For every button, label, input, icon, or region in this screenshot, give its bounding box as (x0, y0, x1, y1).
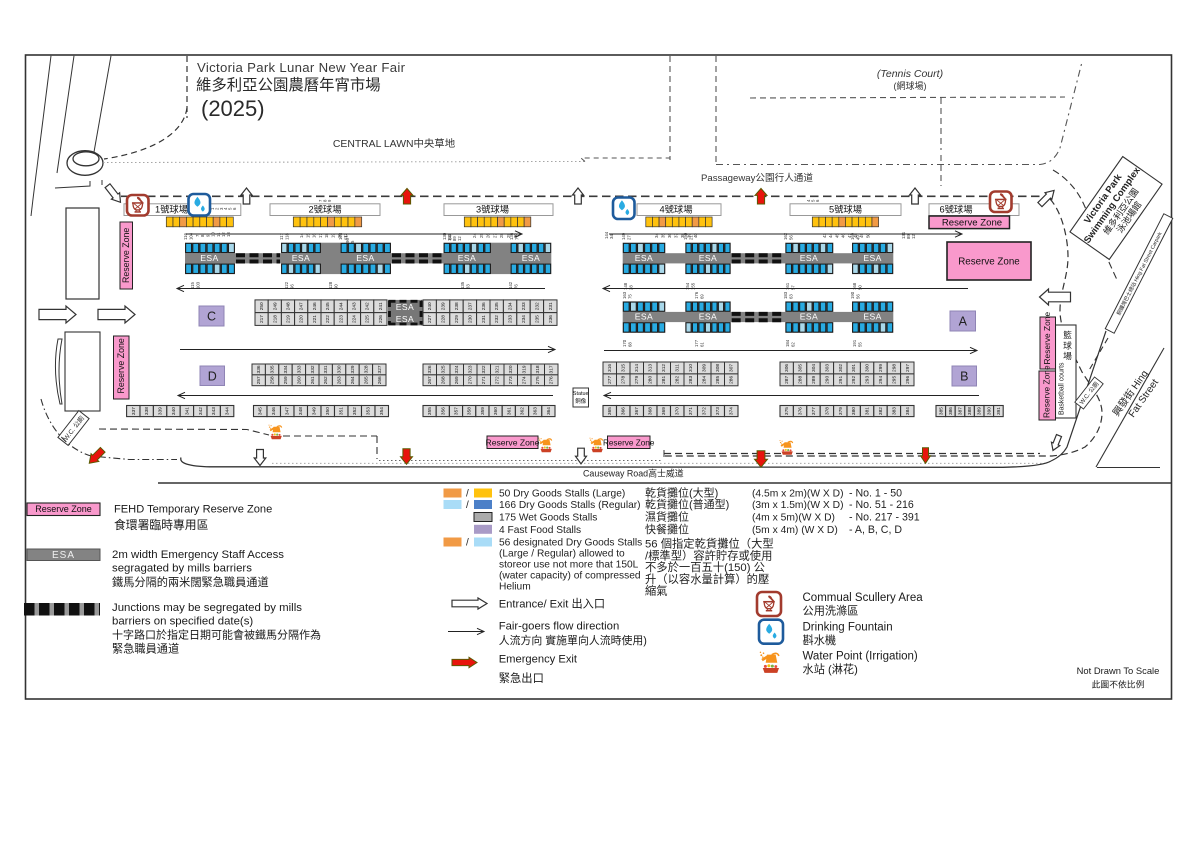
svg-text:44: 44 (828, 233, 833, 238)
svg-text:237: 237 (467, 302, 473, 310)
svg-text:280: 280 (648, 376, 654, 384)
svg-text:62: 62 (791, 342, 796, 347)
svg-text:375: 375 (784, 407, 790, 415)
svg-text:56: 56 (789, 235, 794, 240)
svg-text:56 designated Dry Goods Stalls: 56 designated Dry Goods Stalls (499, 538, 642, 549)
svg-text:368: 368 (648, 407, 654, 415)
svg-text:43: 43 (822, 233, 827, 238)
svg-text:場: 場 (1063, 350, 1072, 361)
svg-text:37: 37 (674, 233, 679, 238)
svg-text:317: 317 (549, 365, 555, 373)
svg-text:303: 303 (824, 364, 830, 372)
svg-text:Junctions may be segregated by: Junctions may be segregated by mills (112, 602, 302, 614)
svg-text:302: 302 (838, 364, 844, 372)
svg-text:316: 316 (607, 364, 613, 372)
svg-text:ESA: ESA (863, 253, 881, 263)
svg-text:乾貨攤位(大型): 乾貨攤位(大型) (645, 486, 718, 500)
svg-text:259: 259 (283, 376, 289, 384)
svg-text:337: 337 (131, 407, 137, 415)
svg-text:不多於一百五十(150) 公: 不多於一百五十(150) 公 (645, 560, 765, 574)
svg-text:3號球場: 3號球場 (476, 204, 509, 215)
svg-text:ESA: ESA (699, 312, 717, 322)
svg-text:347: 347 (285, 407, 291, 415)
svg-text:128: 128 (328, 281, 333, 289)
svg-text:122: 122 (284, 281, 289, 289)
svg-text:維多利亞公園農曆年宵市場: 維多利亞公園農曆年宵市場 (196, 76, 381, 94)
svg-text:330: 330 (337, 365, 343, 373)
svg-text:312: 312 (661, 364, 667, 372)
svg-text:/: / (466, 500, 469, 511)
svg-text:- No. 217 - 391: - No. 217 - 391 (849, 512, 920, 524)
svg-text:269: 269 (454, 376, 460, 384)
svg-text:Fair-goers flow direction: Fair-goers flow direction (499, 621, 620, 633)
svg-text:(網球場): (網球場) (894, 80, 927, 91)
svg-text:Water Point (Irrigation): Water Point (Irrigation) (803, 651, 918, 663)
svg-text:/: / (466, 538, 469, 549)
svg-text:346: 346 (271, 407, 277, 415)
svg-text:55: 55 (858, 342, 863, 347)
svg-text:Reserve Zone: Reserve Zone (958, 257, 1020, 268)
svg-text:236: 236 (548, 315, 554, 323)
svg-text:61: 61 (700, 342, 705, 347)
svg-text:242: 242 (365, 302, 371, 310)
svg-text:364: 364 (546, 407, 552, 415)
svg-text:ESA: ESA (292, 253, 310, 263)
svg-text:223: 223 (338, 315, 344, 323)
svg-text:Reserve Zone: Reserve Zone (1042, 312, 1052, 365)
svg-text:ESA: ESA (863, 312, 881, 322)
svg-text:40: 40 (693, 233, 698, 238)
svg-text:45: 45 (834, 233, 839, 238)
svg-text:339: 339 (158, 407, 164, 415)
svg-text:此圖不依比例: 此圖不依比例 (1092, 679, 1145, 690)
svg-text:18: 18 (324, 233, 329, 238)
svg-text:334: 334 (283, 365, 289, 373)
svg-text:328: 328 (363, 365, 369, 373)
svg-text:261: 261 (310, 376, 316, 384)
svg-text:CENTRAL LAWN中央草地: CENTRAL LAWN中央草地 (333, 137, 456, 150)
svg-text:235: 235 (534, 315, 540, 323)
svg-text:69: 69 (700, 294, 705, 299)
svg-text:123: 123 (338, 232, 343, 240)
svg-text:(5m x 4m) (W X D): (5m x 4m) (W X D) (752, 525, 838, 536)
svg-text:331: 331 (323, 365, 329, 373)
svg-text:232: 232 (534, 302, 540, 310)
svg-text:(4m x 5m)(W X D): (4m x 5m)(W X D) (752, 513, 835, 524)
svg-text:Reserve Zone: Reserve Zone (35, 504, 92, 514)
svg-text:379: 379 (838, 407, 844, 415)
svg-text:326: 326 (427, 365, 433, 373)
svg-text:391: 391 (996, 407, 1002, 415)
svg-text:barriers on specified date(s): barriers on specified date(s) (112, 616, 253, 628)
svg-text:349: 349 (312, 407, 318, 415)
svg-text:227: 227 (427, 315, 433, 323)
svg-text:270: 270 (468, 376, 474, 384)
svg-text:250: 250 (259, 302, 265, 310)
svg-text:289: 289 (811, 376, 817, 384)
svg-text:265: 265 (363, 376, 369, 384)
svg-text:56 個指定乾貨攤位（大型: 56 個指定乾貨攤位（大型 (645, 537, 774, 551)
svg-text:ESA: ESA (635, 312, 653, 322)
svg-text:260: 260 (296, 376, 302, 384)
svg-text:Reserve Zone: Reserve Zone (603, 438, 655, 447)
svg-text:320: 320 (508, 365, 514, 373)
svg-text:290: 290 (824, 376, 830, 384)
svg-text:309: 309 (702, 364, 708, 372)
svg-text:Emergency Exit: Emergency Exit (499, 654, 578, 666)
svg-text:307: 307 (729, 364, 735, 372)
svg-text:275: 275 (535, 376, 541, 384)
svg-text:288: 288 (798, 376, 804, 384)
svg-text:319: 319 (522, 365, 528, 373)
svg-text:358: 358 (467, 407, 473, 415)
svg-text:(Large / Regular) allowed to: (Large / Regular) allowed to (499, 549, 625, 560)
svg-text:232: 232 (494, 315, 500, 323)
svg-text:(2025): (2025) (201, 96, 265, 121)
svg-text:191: 191 (852, 339, 857, 347)
svg-text:315: 315 (621, 364, 627, 372)
svg-text:359: 359 (480, 407, 486, 415)
svg-text:升（以容水量計算）的壓: 升（以容水量計算）的壓 (645, 572, 769, 586)
svg-text:Reserve Zone: Reserve Zone (942, 218, 1002, 229)
svg-text:149: 149 (621, 232, 626, 240)
svg-text:356: 356 (440, 407, 446, 415)
svg-text:284: 284 (702, 376, 708, 384)
svg-text:- No. 1 - 50: - No. 1 - 50 (849, 488, 902, 500)
svg-text:籃: 籃 (1063, 329, 1072, 340)
svg-text:305: 305 (798, 364, 804, 372)
svg-text:2m width Emergency Staff Acces: 2m width Emergency Staff Access (112, 549, 284, 561)
svg-text:21: 21 (689, 235, 694, 240)
svg-text:230: 230 (467, 315, 473, 323)
svg-text:321: 321 (495, 365, 501, 373)
svg-text:238: 238 (454, 302, 460, 310)
svg-text:354: 354 (379, 407, 385, 415)
svg-text:299: 299 (878, 364, 884, 372)
svg-text:12: 12 (457, 236, 462, 241)
svg-text:273: 273 (508, 376, 514, 384)
svg-text:14: 14 (299, 233, 304, 238)
svg-text:247: 247 (299, 302, 305, 310)
svg-text:緊急職員通道: 緊急職員通道 (112, 642, 179, 656)
svg-text:333: 333 (296, 365, 302, 373)
svg-text:34: 34 (654, 233, 659, 238)
svg-text:221: 221 (312, 315, 318, 323)
svg-text:17: 17 (318, 233, 323, 238)
svg-text:292: 292 (851, 376, 857, 384)
svg-text:6號球場: 6號球場 (939, 204, 972, 215)
svg-text:49: 49 (856, 235, 861, 240)
svg-text:5號球場: 5號球場 (829, 204, 862, 215)
svg-text:336: 336 (256, 365, 262, 373)
svg-text:389: 389 (977, 407, 983, 415)
svg-text:91: 91 (344, 235, 349, 240)
svg-text:352: 352 (352, 407, 358, 415)
svg-text:/: / (466, 489, 469, 500)
svg-text:380: 380 (851, 407, 857, 415)
svg-text:338: 338 (144, 407, 150, 415)
svg-text:Causeway Road高士威道: Causeway Road高士威道 (583, 468, 684, 479)
svg-text:244: 244 (338, 302, 344, 310)
svg-text:184: 184 (785, 339, 790, 347)
svg-text:282: 282 (675, 376, 681, 384)
svg-text:28: 28 (499, 233, 504, 238)
svg-text:264: 264 (350, 376, 356, 384)
svg-text:169: 169 (850, 232, 855, 240)
svg-text:150: 150 (683, 232, 688, 240)
svg-text:277: 277 (607, 376, 613, 384)
svg-text:257: 257 (256, 376, 262, 384)
svg-text:384: 384 (905, 407, 911, 415)
svg-text:Basketball courts: Basketball courts (1059, 362, 1066, 415)
svg-text:57: 57 (791, 285, 796, 290)
svg-text:234: 234 (508, 302, 514, 310)
svg-text:233: 233 (508, 315, 514, 323)
svg-text:ESA: ESA (396, 314, 414, 324)
svg-text:350: 350 (325, 407, 331, 415)
svg-text:366: 366 (621, 407, 627, 415)
svg-text:355: 355 (427, 407, 433, 415)
svg-text:283: 283 (688, 376, 694, 384)
svg-text:190: 190 (850, 291, 855, 299)
svg-text:Reserve Zone: Reserve Zone (1042, 365, 1052, 418)
svg-text:35: 35 (661, 233, 666, 238)
svg-text:170: 170 (622, 339, 627, 347)
svg-text:329: 329 (350, 365, 356, 373)
svg-text:240: 240 (427, 302, 433, 310)
svg-text:Victoria Park Lunar New Year F: Victoria Park Lunar New Year Fair (197, 60, 406, 75)
svg-text:376: 376 (798, 407, 804, 415)
svg-text:370: 370 (675, 407, 681, 415)
svg-text:115: 115 (190, 282, 195, 289)
svg-text:385: 385 (938, 407, 944, 415)
svg-text:水站 (淋花): 水站 (淋花) (803, 662, 859, 676)
svg-text:322: 322 (481, 365, 487, 373)
svg-text:285: 285 (715, 376, 721, 384)
svg-text:351: 351 (339, 407, 345, 415)
svg-text:217: 217 (259, 315, 265, 323)
svg-text:231: 231 (548, 302, 554, 310)
svg-text:FEHD Temporary Reserve Zone: FEHD Temporary Reserve Zone (114, 504, 272, 516)
svg-text:ESA: ESA (800, 253, 818, 263)
svg-text:342: 342 (198, 407, 204, 415)
svg-text:50: 50 (858, 285, 863, 290)
svg-text:229: 229 (454, 315, 460, 323)
svg-text:311: 311 (675, 364, 681, 372)
svg-text:- No. 51 - 216: - No. 51 - 216 (849, 499, 914, 511)
svg-text:D: D (208, 369, 217, 383)
svg-text:銅像: 銅像 (575, 397, 586, 405)
svg-text:267: 267 (427, 376, 433, 384)
svg-text:294: 294 (878, 376, 884, 384)
svg-text:ESA: ESA (356, 253, 374, 263)
svg-text:225: 225 (365, 315, 371, 323)
svg-text:斟水機: 斟水機 (803, 633, 837, 647)
svg-text:B: B (960, 370, 968, 384)
svg-text:鐵馬分隔的兩米闊緊急職員通道: 鐵馬分隔的兩米闊緊急職員通道 (112, 575, 269, 589)
svg-text:50: 50 (865, 233, 870, 238)
svg-text:84: 84 (448, 235, 453, 240)
svg-text:2號球場: 2號球場 (308, 204, 341, 215)
svg-text:4號球場: 4號球場 (659, 204, 692, 215)
svg-text:63: 63 (789, 294, 794, 299)
svg-text:233: 233 (521, 302, 527, 310)
svg-text:306: 306 (784, 364, 790, 372)
svg-text:Entrance/ Exit 出入口: Entrance/ Exit 出入口 (499, 597, 605, 611)
svg-text:363: 363 (533, 407, 539, 415)
svg-text:278: 278 (621, 376, 627, 384)
svg-text:304: 304 (811, 364, 817, 372)
svg-text:245: 245 (325, 302, 331, 310)
svg-text:313: 313 (648, 364, 654, 372)
svg-text:ESA: ESA (522, 253, 540, 263)
svg-text:快餐攤位: 快餐攤位 (645, 522, 689, 536)
svg-text:(3m x 1.5m)(W X D): (3m x 1.5m)(W X D) (752, 500, 844, 511)
svg-text:濕貨攤位: 濕貨攤位 (645, 510, 689, 524)
svg-text:乾貨攤位(普通型): 乾貨攤位(普通型) (645, 497, 729, 511)
svg-text:228: 228 (441, 315, 447, 323)
svg-text:362: 362 (520, 407, 526, 415)
svg-text:332: 332 (310, 365, 316, 373)
svg-text:56: 56 (856, 294, 861, 299)
svg-text:(water capacity) of compressed: (water capacity) of compressed (499, 571, 641, 582)
svg-text:387: 387 (958, 407, 964, 415)
svg-text:Reserve Zone: Reserve Zone (116, 338, 126, 393)
svg-text:243: 243 (352, 302, 358, 310)
svg-text:382: 382 (878, 407, 884, 415)
svg-text:166 Dry Goods Stalls (Regular): 166 Dry Goods Stalls (Regular) (499, 500, 641, 511)
svg-text:314: 314 (634, 364, 640, 372)
svg-text:公用洗滌區: 公用洗滌區 (803, 604, 859, 618)
svg-text:46: 46 (841, 233, 846, 238)
svg-text:344: 344 (225, 407, 231, 415)
svg-text:食環署臨時專用區: 食環署臨時專用區 (114, 518, 209, 532)
svg-text:(Tennis Court): (Tennis Court) (877, 68, 943, 80)
svg-text:人流方向 實施單向人流時使用): 人流方向 實施單向人流時使用) (499, 633, 647, 647)
svg-text:301: 301 (851, 364, 857, 372)
svg-text:348: 348 (298, 407, 304, 415)
svg-text:219: 219 (286, 315, 292, 323)
svg-text:36: 36 (667, 233, 672, 238)
svg-text:291: 291 (838, 376, 844, 384)
svg-text:281: 281 (661, 376, 667, 384)
svg-text:136: 136 (509, 232, 514, 240)
svg-text:176: 176 (694, 291, 699, 299)
svg-text:390: 390 (986, 407, 992, 415)
svg-text:/標準型）容許貯存或使用: /標準型）容許貯存或使用 (645, 548, 772, 562)
svg-text:storeor use not more that 150L: storeor use not more that 150L (499, 560, 639, 571)
svg-text:Not Drawn To Scale: Not Drawn To Scale (1077, 665, 1160, 676)
svg-text:Drinking Fountain: Drinking Fountain (803, 622, 893, 634)
svg-text:28: 28 (629, 285, 634, 290)
svg-text:104: 104 (189, 232, 194, 240)
svg-text:287: 287 (784, 376, 790, 384)
svg-text:Reserve Zone: Reserve Zone (486, 437, 540, 447)
svg-text:緊急出口: 緊急出口 (499, 671, 544, 685)
svg-text:十字路口於指定日期可能會被鐵馬分隔作為: 十字路口於指定日期可能會被鐵馬分隔作為 (112, 628, 321, 642)
svg-text:262: 262 (323, 376, 329, 384)
svg-text:50 Dry Goods Stalls (Large): 50 Dry Goods Stalls (Large) (499, 489, 625, 500)
svg-text:Commual Scullery Area: Commual Scullery Area (803, 592, 924, 604)
svg-text:325: 325 (441, 365, 447, 373)
svg-text:241: 241 (378, 302, 384, 310)
svg-text:383: 383 (891, 407, 897, 415)
svg-text:372: 372 (702, 407, 708, 415)
svg-text:ESA: ESA (458, 253, 476, 263)
svg-text:142: 142 (508, 281, 513, 289)
svg-text:4 Fast Food Stalls: 4 Fast Food Stalls (499, 525, 581, 536)
svg-text:263: 263 (337, 376, 343, 384)
svg-text:A: A (959, 315, 968, 329)
svg-text:258: 258 (270, 376, 276, 384)
svg-text:297: 297 (905, 364, 911, 372)
svg-text:276: 276 (549, 376, 555, 384)
svg-text:239: 239 (441, 302, 447, 310)
svg-text:218: 218 (272, 315, 278, 323)
svg-text:300: 300 (865, 364, 871, 372)
svg-text:Helium: Helium (499, 582, 531, 593)
svg-text:296: 296 (905, 376, 911, 384)
svg-text:308: 308 (715, 364, 721, 372)
svg-text:130: 130 (442, 232, 447, 240)
svg-text:272: 272 (495, 376, 501, 384)
svg-text:293: 293 (865, 376, 871, 384)
svg-text:318: 318 (535, 365, 541, 373)
svg-text:234: 234 (521, 315, 527, 323)
svg-text:26: 26 (486, 233, 491, 238)
svg-text:343: 343 (211, 407, 217, 415)
svg-text:381: 381 (865, 407, 871, 415)
svg-text:C: C (207, 310, 216, 324)
svg-text:386: 386 (948, 407, 954, 415)
svg-text:341: 341 (184, 407, 190, 415)
svg-text:103: 103 (196, 281, 201, 289)
svg-text:236: 236 (481, 302, 487, 310)
svg-text:ESA: ESA (200, 253, 218, 263)
svg-text:357: 357 (454, 407, 460, 415)
svg-text:374: 374 (729, 407, 735, 415)
svg-text:segragated by mills barriers: segragated by mills barriers (112, 563, 252, 575)
svg-text:286: 286 (729, 376, 735, 384)
svg-text:373: 373 (715, 407, 721, 415)
svg-text:162: 162 (783, 232, 788, 240)
svg-text:135: 135 (460, 281, 465, 289)
svg-text:68: 68 (628, 342, 633, 347)
svg-text:ESA: ESA (800, 312, 818, 322)
svg-text:220: 220 (299, 315, 305, 323)
svg-text:15: 15 (305, 233, 310, 238)
svg-text:16: 16 (312, 233, 317, 238)
svg-text:25: 25 (479, 233, 484, 238)
svg-text:224: 224 (352, 315, 358, 323)
svg-text:235: 235 (494, 302, 500, 310)
svg-text:75: 75 (628, 294, 633, 299)
svg-text:177: 177 (694, 339, 699, 347)
svg-text:226: 226 (378, 315, 384, 323)
svg-text:335: 335 (270, 365, 276, 373)
svg-text:340: 340 (171, 407, 177, 415)
svg-text:266: 266 (377, 376, 383, 384)
svg-text:163: 163 (622, 291, 627, 299)
svg-text:388: 388 (967, 407, 973, 415)
svg-text:274: 274 (522, 376, 528, 384)
svg-text:361: 361 (506, 407, 512, 415)
svg-text:378: 378 (824, 407, 830, 415)
svg-text:(4.5m x 2m)(W X D): (4.5m x 2m)(W X D) (752, 489, 844, 500)
svg-text:222: 222 (325, 315, 331, 323)
svg-text:367: 367 (634, 407, 640, 415)
svg-text:371: 371 (688, 407, 694, 415)
